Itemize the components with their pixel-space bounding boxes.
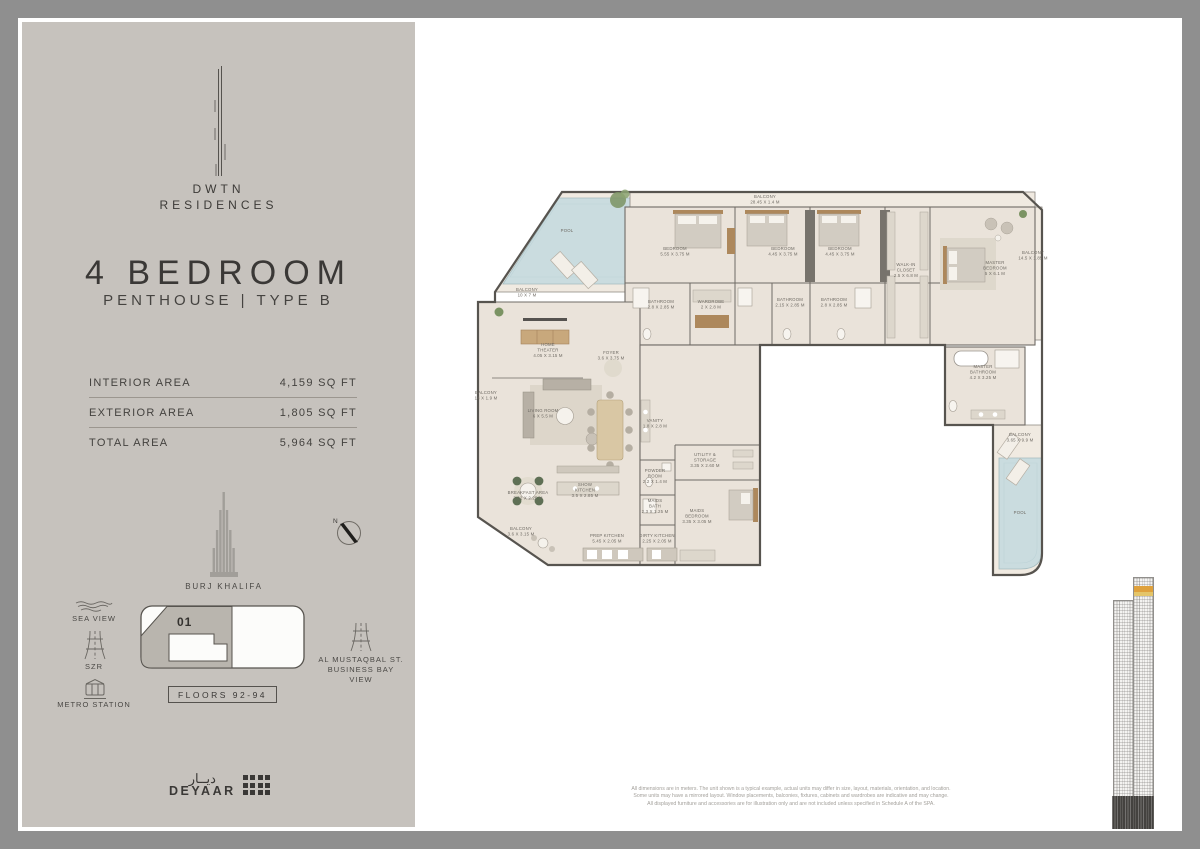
sea-view-icon <box>74 600 114 612</box>
room-label: BALCONY3.65 X 9.9 M <box>1007 432 1034 442</box>
tower-elevation-left-wing <box>1113 600 1135 798</box>
room-label: MASTERBATHROOM4.2 X 3.25 M <box>970 364 997 380</box>
tower-elevation-right-wing <box>1133 577 1154 798</box>
disclaimer-line1: All dimensions are in meters. The unit s… <box>608 786 974 793</box>
metro-station-label: METRO STATION <box>34 700 154 709</box>
armchair-icon <box>985 218 997 230</box>
floors-badge: FLOORS 92-94 <box>168 686 277 703</box>
szr-road-icon <box>81 630 109 660</box>
disclaimer-line2: Some units may have a mirrored layout. W… <box>608 793 974 800</box>
brochure-page: DWTN RESIDENCES 4 BEDROOM PENTHOUSE | TY… <box>0 0 1200 849</box>
svg-text:01: 01 <box>177 615 192 629</box>
metro-station-icon <box>83 678 107 700</box>
area-value: 5,964 SQ FT <box>280 437 357 449</box>
room-label: WALK-INCLOSET2.5 X 6.8 M <box>894 262 918 278</box>
room-label: POOL <box>1014 510 1027 515</box>
room-label: POOL <box>561 228 574 233</box>
room-label: BALCONY10 X 7 M <box>516 287 538 297</box>
page-subtitle: PENTHOUSE | TYPE B <box>22 292 415 309</box>
area-table: INTERIOR AREA 4,159 SQ FT EXTERIOR AREA … <box>89 368 357 457</box>
plant-icon <box>495 308 504 317</box>
deyaar-latin-text: DEYAAR <box>169 785 236 798</box>
deyaar-wordmark: ديــار DEYAAR <box>169 772 236 798</box>
al-mustaqbal-label-3: VIEW <box>301 675 421 684</box>
disclaimer-line3: All displayed furniture and accessories … <box>608 801 974 808</box>
room-label: BATHROOM2.8 X 2.85 M <box>648 299 675 309</box>
room-label: MASTERBEDROOM5 X 6.1 M <box>983 260 1007 276</box>
dining-table-icon <box>597 400 623 460</box>
deyaar-grid-icon <box>243 775 271 795</box>
compass-icon: N <box>324 514 374 564</box>
svg-text:N: N <box>333 518 338 525</box>
tv-icon <box>523 318 567 321</box>
tower-elevation <box>1111 575 1157 830</box>
burj-khalifa-label: BURJ KHALIFA <box>162 582 286 591</box>
room-label: UTILITY &STORAGE3.35 X 2.60 M <box>690 452 720 468</box>
sea-view-label: SEA VIEW <box>44 614 144 623</box>
rug <box>604 359 622 377</box>
room-label: BREAKFAST AREA3.62 X 2.25 M <box>508 490 549 500</box>
al-mustaqbal-label-2: BUSINESS BAY <box>301 665 421 674</box>
sidebar: DWTN RESIDENCES 4 BEDROOM PENTHOUSE | TY… <box>22 22 415 827</box>
brand-name-line2: RESIDENCES <box>22 198 415 212</box>
al-mustaqbal-label-1: AL MUSTAQBAL ST. <box>301 655 421 664</box>
plant-icon <box>1019 210 1027 218</box>
room-label: BEDROOM4.45 X 3.75 M <box>825 246 855 256</box>
room-label: BATHROOM2.8 X 2.85 M <box>821 297 848 307</box>
room-label: BALCONY28.45 X 1.4 M <box>750 194 780 204</box>
floor-plan: POOLBALCONY10 X 7 MBALCONY28.45 X 1.4 MB… <box>435 150 1075 600</box>
area-row-interior: INTERIOR AREA 4,159 SQ FT <box>89 368 357 398</box>
room-label: BATHROOM2.15 X 2.85 M <box>775 297 805 307</box>
room-label: DIRTY KITCHEN2.25 X 2.05 M <box>639 533 674 543</box>
area-label: INTERIOR AREA <box>89 377 191 389</box>
sofa-icon <box>543 379 591 390</box>
coffee-table-icon <box>557 408 574 425</box>
al-mustaqbal-road-icon <box>347 622 375 652</box>
area-label: EXTERIOR AREA <box>89 407 195 419</box>
area-row-exterior: EXTERIOR AREA 1,805 SQ FT <box>89 398 357 428</box>
burj-khalifa-icon <box>202 492 246 580</box>
room-label: BEDROOM5.55 X 3.75 M <box>660 246 690 256</box>
area-value: 1,805 SQ FT <box>280 407 357 419</box>
room-label: BALCONY14 X 1.9 M <box>475 390 498 400</box>
area-label: TOTAL AREA <box>89 437 168 449</box>
tower-elevation-base <box>1112 796 1154 829</box>
room-label: BEDROOM4.45 X 3.75 M <box>768 246 798 256</box>
area-value: 4,159 SQ FT <box>280 377 357 389</box>
dwtn-logo-icon <box>205 66 235 178</box>
area-row-total: TOTAL AREA 5,964 SQ FT <box>89 428 357 457</box>
disclaimer: All dimensions are in meters. The unit s… <box>608 786 974 808</box>
armchair-icon <box>586 433 598 445</box>
page-title: 4 BEDROOM <box>22 254 415 293</box>
brand-name-line1: DWTN <box>22 182 415 196</box>
room-label: BALCONY3.6 X 3.15 M <box>508 526 535 536</box>
armchair-icon <box>1001 222 1013 234</box>
page-inner: DWTN RESIDENCES 4 BEDROOM PENTHOUSE | TY… <box>18 18 1182 831</box>
szr-label: SZR <box>44 662 144 671</box>
key-plan: 01 <box>139 604 307 672</box>
deyaar-logo: ديــار DEYAAR <box>169 772 270 798</box>
room-label: PREP KITCHEN5.45 X 2.05 M <box>590 533 624 543</box>
room-label: WARDROBE2 X 2.8 M <box>698 299 725 309</box>
room-label: BALCONY14.5 X 1.85 M <box>1018 250 1048 260</box>
